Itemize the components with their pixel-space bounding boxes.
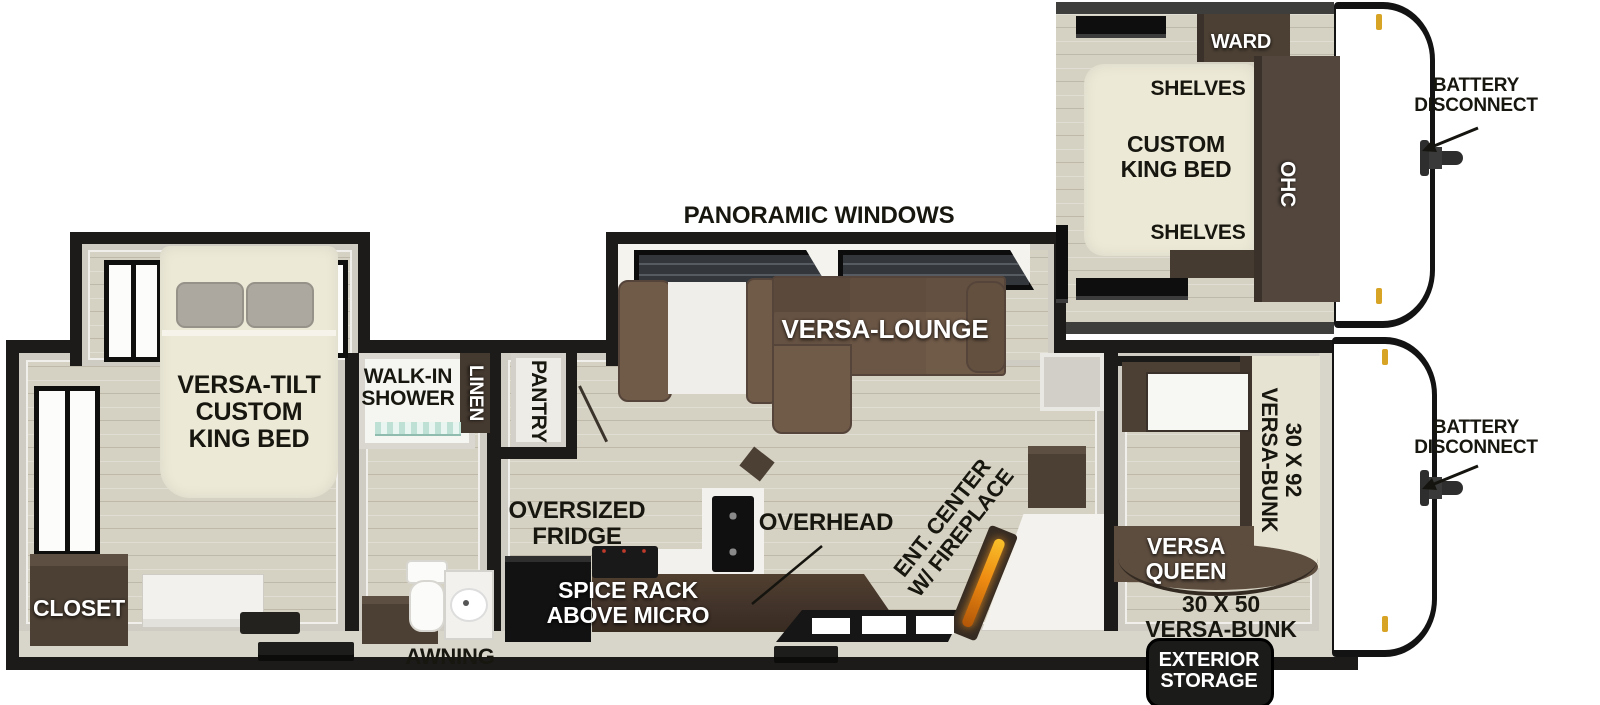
sink-bowl-icon	[450, 588, 488, 622]
shower-glass-icon	[375, 422, 461, 436]
sink-drain-icon	[463, 600, 469, 606]
pantry-wall	[566, 353, 577, 453]
shelves-bottom-label: SHELVES	[1128, 222, 1268, 244]
inset-window-icon	[1076, 278, 1188, 300]
entry-step-slot	[862, 616, 906, 634]
floor-vent-icon	[240, 612, 300, 634]
living-soffit	[1040, 353, 1104, 411]
bed-sheet-line	[162, 330, 336, 336]
entry-step-slot	[812, 618, 850, 634]
pillow-icon	[246, 282, 314, 328]
battery-disconnect-label: BATTERY DISCONNECT	[1408, 76, 1544, 117]
wall-living-bunk	[1104, 353, 1118, 631]
overhead-pointer-line	[744, 540, 828, 612]
versa-lounge-label: VERSA-LOUNGE	[778, 316, 992, 344]
ward-label: WARD	[1199, 32, 1283, 53]
window-icon	[34, 386, 100, 556]
entry-step-slot	[916, 616, 954, 634]
inset-window-icon	[1076, 16, 1166, 38]
sofa-arm	[618, 280, 672, 402]
stabilizer-step-icon	[774, 646, 838, 663]
panoramic-windows-label: PANORAMIC WINDOWS	[604, 203, 1034, 229]
spice-rack-label: SPICE RACK ABOVE MICRO	[538, 578, 718, 627]
clearance-marker-icon	[1376, 14, 1382, 30]
bunk-30x50-label: 30 X 50 VERSA-BUNK	[1128, 592, 1314, 641]
arrow-icon	[1414, 460, 1484, 494]
arrow-icon	[1414, 122, 1484, 156]
sofa-pad	[668, 282, 746, 394]
linen-label: LINEN	[461, 356, 489, 430]
clearance-marker-icon	[1382, 616, 1388, 632]
versa-queen-label: VERSA QUEEN	[1130, 534, 1242, 583]
sofa-chaise	[772, 344, 852, 434]
closet-label: CLOSET	[32, 596, 126, 621]
bunk-30x92-label: 30 X 92 VERSA-BUNK	[1233, 350, 1329, 570]
inset-window-icon	[1056, 225, 1068, 303]
pantry-label: PANTRY	[522, 358, 554, 444]
inset-under-bed-shelf	[1170, 250, 1254, 278]
clearance-marker-icon	[1382, 349, 1388, 365]
toilet-icon	[409, 580, 445, 632]
stabilizer-step-icon	[258, 642, 354, 661]
ohc-label: OHC	[1272, 136, 1302, 232]
floorplan-diagram: WARD SHELVES CUSTOM KING BED SHELVES OHC…	[0, 0, 1600, 705]
corner-cabinet	[1028, 446, 1086, 508]
clearance-marker-icon	[1376, 288, 1382, 304]
window-icon	[104, 260, 162, 362]
exterior-storage-label: EXTERIOR STORAGE	[1148, 650, 1270, 693]
master-bed-label: VERSA-TILT CUSTOM KING BED	[156, 372, 342, 452]
awning-label: AWNING	[396, 645, 504, 669]
oversized-fridge-label: OVERSIZED FRIDGE	[506, 498, 648, 549]
stove-icon	[592, 546, 658, 578]
inset-bed-label: CUSTOM KING BED	[1094, 132, 1258, 181]
pillow-icon	[176, 282, 244, 328]
overhead-label: OVERHEAD	[756, 510, 896, 536]
pantry-wall	[501, 447, 577, 459]
battery-disconnect-label: BATTERY DISCONNECT	[1408, 418, 1544, 459]
shelves-top-label: SHELVES	[1128, 78, 1268, 100]
walk-in-shower-label: WALK-IN SHOWER	[352, 366, 464, 411]
